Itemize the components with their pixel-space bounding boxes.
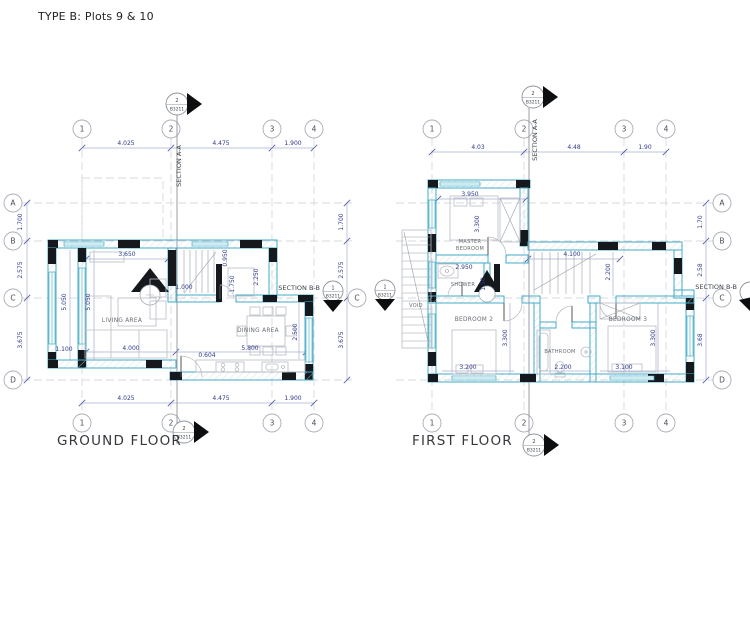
stove xyxy=(216,362,244,372)
dimension-label: 1.750 xyxy=(229,275,236,292)
dimension-label: 5.800 xyxy=(241,345,258,352)
grid-bubble-label: 4 xyxy=(312,419,317,428)
dimension-label: 4.475 xyxy=(212,140,229,147)
dimension-label: 3.68 xyxy=(697,333,704,347)
staircase xyxy=(184,250,254,302)
section-marker-number: 2 xyxy=(532,439,535,445)
section-marker-sheet: B3211 xyxy=(378,293,392,299)
dimension-label: 5.050 xyxy=(61,293,68,310)
room-label: VOID xyxy=(409,303,423,309)
room-and-dim-labels: MASTER BEDROOM SHOWER VOID BEDROOM 2 BAT… xyxy=(409,191,657,371)
section-label: SECTION A-A xyxy=(531,119,539,161)
section-label: SECTION B-B xyxy=(278,284,320,292)
dimension-label: 2.950 xyxy=(455,264,472,271)
dimension-label: 2.250 xyxy=(253,268,260,285)
dimension-label: 1.90 xyxy=(638,144,652,151)
dimension-label: 1.900 xyxy=(284,395,301,402)
dimension-label: 2.575 xyxy=(338,261,345,278)
grid-bubble-label: 1 xyxy=(80,419,85,428)
grid-bubble-label: 2 xyxy=(522,125,527,134)
grid-bubble-label: C xyxy=(354,294,359,303)
dimension-label: 1.70 xyxy=(697,215,704,229)
dimension-label: 4.025 xyxy=(117,140,134,147)
roof-projection-outline xyxy=(82,178,163,240)
dimension-label: 1.900 xyxy=(284,140,301,147)
dimension-label: 2.200 xyxy=(554,364,571,371)
room-label: BEDROOM 3 xyxy=(609,317,648,323)
floor-label: GROUND FLOOR xyxy=(57,433,182,449)
drawing-sheet: TYPE B: Plots 9 & 10 xyxy=(0,0,750,619)
dimension-label: 2.58 xyxy=(697,263,704,277)
dimension-label: 4.025 xyxy=(117,395,134,402)
grid-bubble-label: 4 xyxy=(664,419,669,428)
dimension-label: 2.200 xyxy=(605,263,612,280)
section-marker-number: 1 xyxy=(331,286,334,292)
section-marker-sheet: B3211 xyxy=(527,448,541,454)
grid-bubble-label: 3 xyxy=(622,125,627,134)
grid-bubble-label: C xyxy=(10,294,15,303)
section-label: SECTION B-B xyxy=(695,283,737,291)
dimension-label: 1.000 xyxy=(175,284,192,291)
dimension-label: 3.675 xyxy=(338,331,345,348)
grid-bubbles: 1 2 3 4 1 2 3 4 A B C D xyxy=(423,120,731,432)
section-label: SECTION A-A xyxy=(175,145,183,187)
dimension-label: 4.03 xyxy=(471,144,485,151)
dimension-label: 4.000 xyxy=(122,345,139,352)
grid-bubble-label: 2 xyxy=(169,125,174,134)
ground-floor-plan: 4.025 4.475 1.900 4.025 4.475 1.900 1.70… xyxy=(4,93,366,449)
section-marker-number: 1 xyxy=(383,285,386,291)
dimension-label: 3.300 xyxy=(502,329,509,346)
grid-bubble-label: 4 xyxy=(312,125,317,134)
grid-bubble-label: 4 xyxy=(664,125,669,134)
grid-bubble-label: A xyxy=(719,199,725,208)
section-marker-sheet: B3211 xyxy=(526,100,540,106)
grid-bubble-label: B xyxy=(10,237,15,246)
dimension-label: 4.475 xyxy=(212,395,229,402)
section-marker-number: 2 xyxy=(175,98,178,104)
dimension-label: 3.650 xyxy=(118,251,135,258)
dimension-label: 1.700 xyxy=(338,213,345,230)
dimension-label: 5.050 xyxy=(85,293,92,310)
room-label: DINING AREA xyxy=(237,328,279,334)
room-label: BEDROOM 2 xyxy=(455,317,494,323)
grid-bubbles: 1 2 3 4 1 2 3 4 A B C D C xyxy=(4,120,366,432)
dimension-label: 4.48 xyxy=(567,144,581,151)
first-floor-plan: 4.03 4.48 1.90 1.70 2.58 3.68 1 2 3 4 1 … xyxy=(375,86,750,456)
dimension-label: 0.604 xyxy=(198,352,215,359)
grid-bubble-label: 1 xyxy=(430,125,435,134)
grid-bubble-label: 3 xyxy=(622,419,627,428)
dimension-label: 3.675 xyxy=(17,331,24,348)
dimension-label: 0.950 xyxy=(222,249,229,266)
section-marker-number: 2 xyxy=(531,91,534,97)
grid-bubble-label: 3 xyxy=(270,125,275,134)
grid-bubble-label: D xyxy=(10,376,16,385)
dimension-label: 1.700 xyxy=(17,213,24,230)
grid-bubble-label: C xyxy=(719,294,724,303)
kitchen-counter xyxy=(196,360,305,372)
section-marker-sheet: B3211 xyxy=(170,107,184,113)
dimension-label: 3.950 xyxy=(461,191,478,198)
section-marker-number: 2 xyxy=(182,426,185,432)
grid-bubble-label: 2 xyxy=(522,419,527,428)
dimension-label: 3.100 xyxy=(615,364,632,371)
grid-bubble-label: 3 xyxy=(270,419,275,428)
grid-bubble-label: B xyxy=(719,237,724,246)
dimension-label: 4.100 xyxy=(563,251,580,258)
floor-plan-drawing: 4.025 4.475 1.900 4.025 4.475 1.900 1.70… xyxy=(0,0,750,619)
dimension-label: 3.300 xyxy=(474,215,481,232)
floor-label: FIRST FLOOR xyxy=(412,433,513,449)
dimension-label: 3.200 xyxy=(459,364,476,371)
room-label: SHOWER xyxy=(451,282,475,288)
grid-bubble-label: A xyxy=(10,199,16,208)
dimension-label: 2.500 xyxy=(292,323,299,340)
dimension-label: 1.50 xyxy=(480,277,487,291)
grid-bubble-label: 1 xyxy=(430,419,435,428)
grid-bubble-label: 2 xyxy=(169,419,174,428)
section-marker-bb-left: 1 B3211 xyxy=(375,280,395,311)
basin xyxy=(440,266,454,276)
room-label: BATHROOM xyxy=(544,349,575,355)
dimension-label: 2.575 xyxy=(17,261,24,278)
dimension-label: 1.100 xyxy=(55,346,72,353)
room-label: BEDROOM xyxy=(456,246,484,252)
external-staircase xyxy=(402,230,431,348)
grid-bubble-label: 1 xyxy=(80,125,85,134)
room-label: MASTER xyxy=(459,239,482,245)
section-marker-sheet: B3211 xyxy=(326,294,340,300)
section-marker-aa-top: 2 B3211 SECTION A-A xyxy=(522,86,558,455)
grid-bubble-label: D xyxy=(719,376,725,385)
section-marker-aa-bottom: 2 B3211 xyxy=(523,434,559,456)
dimension-label: 3.300 xyxy=(650,329,657,346)
room-label: LIVING AREA xyxy=(102,318,142,324)
